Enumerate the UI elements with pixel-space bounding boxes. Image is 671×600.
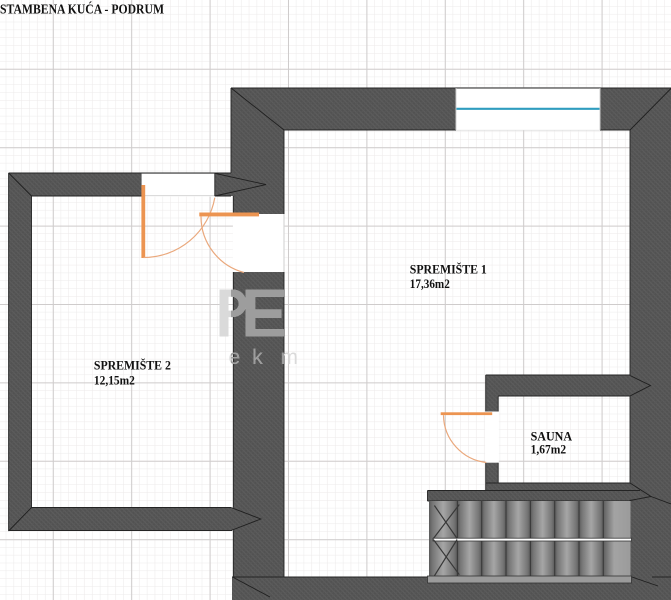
svg-text:SPREMIŠTE 2: SPREMIŠTE 2 bbox=[94, 357, 171, 372]
svg-text:12,15m2: 12,15m2 bbox=[94, 372, 135, 387]
svg-text:SPREMIŠTE 1: SPREMIŠTE 1 bbox=[410, 262, 487, 277]
svg-text:17,36m2: 17,36m2 bbox=[410, 276, 450, 291]
svg-text:1,67m2: 1,67m2 bbox=[531, 441, 567, 456]
svg-text:STAMBENA KUĆA - PODRUM: STAMBENA KUĆA - PODRUM bbox=[0, 0, 164, 16]
svg-text:k: k bbox=[252, 346, 263, 369]
